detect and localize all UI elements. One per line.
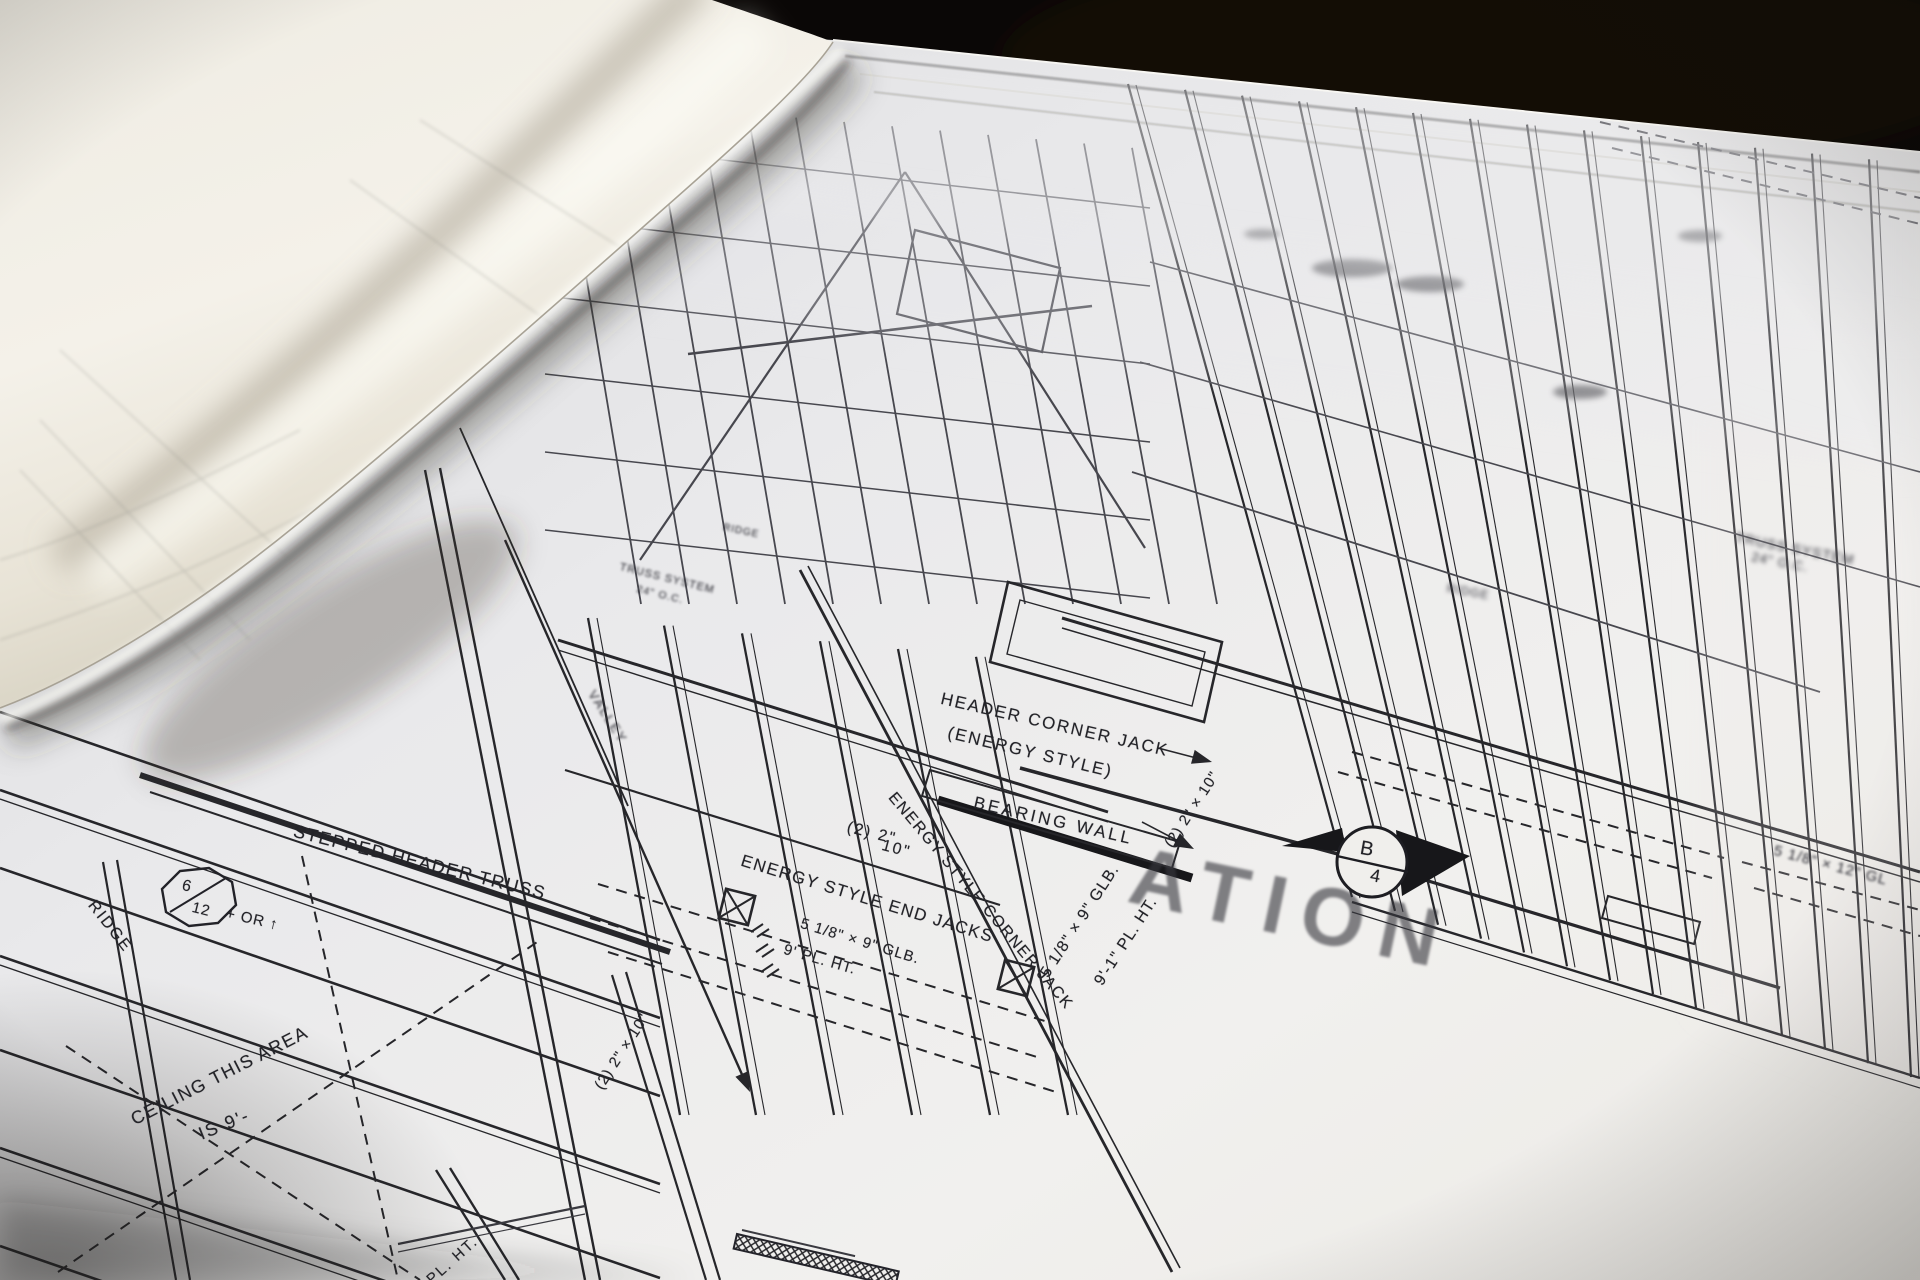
label-pitch-6: 6 xyxy=(180,878,193,896)
label-ceiling-height: IS 9'- xyxy=(196,1106,252,1143)
label-ceiling-area: CEILING THIS AREA xyxy=(128,1023,311,1128)
plan-annotations: HEADER CORNER JACK (ENERGY STYLE) BEARIN… xyxy=(0,0,1920,1280)
label-section-letter: B xyxy=(1359,838,1378,860)
blueprint-photo-scene: HEADER CORNER JACK (ENERGY STYLE) BEARIN… xyxy=(0,0,1920,1280)
label-pitch-12: 12 xyxy=(190,900,212,919)
label-bearing-wall: BEARING WALL xyxy=(972,794,1135,847)
label-vertical-2x10-left: (2) 2" × 10" xyxy=(592,1011,652,1092)
label-watermark: ATION xyxy=(1123,835,1462,984)
label-plate-height-bottom: PL. HT. xyxy=(424,1234,481,1280)
label-glb-12: 5 1/8" × 12" GL xyxy=(1772,843,1889,888)
label-pitch-or: + OR ↑ xyxy=(225,906,280,933)
label-valley: VALLEY xyxy=(586,688,630,746)
label-stepped-header-truss: STEPPED HEADER TRUSS xyxy=(292,822,548,902)
label-ridge-right: RIDGE xyxy=(1446,582,1490,601)
label-ridge-mid: RIDGE xyxy=(722,523,760,540)
label-plate-height-9: 9' PL. HT. xyxy=(782,942,858,977)
label-ridge-left: RIDGE xyxy=(84,898,134,956)
label-10in: 10" xyxy=(880,838,913,861)
